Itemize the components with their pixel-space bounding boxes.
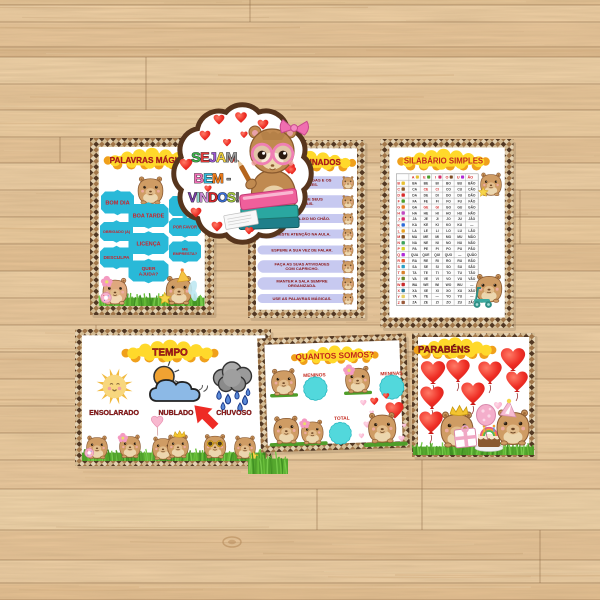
svg-text:MÃO: MÃO [468, 234, 476, 239]
svg-text:ZU: ZU [458, 301, 463, 305]
svg-text:CHUVOSO: CHUVOSO [216, 410, 252, 417]
svg-text:NÃO: NÃO [468, 240, 476, 245]
svg-text:QUÃO: QUÃO [467, 252, 477, 257]
svg-text:Q: Q [397, 253, 400, 257]
svg-text:H: H [397, 211, 400, 215]
svg-text:WA: WA [412, 283, 418, 287]
svg-text:K: K [397, 223, 400, 227]
svg-text:RA: RA [412, 259, 417, 263]
svg-text:QUI: QUI [434, 253, 440, 257]
svg-text:CO: CO [446, 187, 451, 191]
svg-text:XO: XO [446, 289, 451, 293]
svg-text:XI: XI [436, 289, 439, 293]
svg-text:BOM DIA: BOM DIA [105, 201, 129, 207]
svg-text:LÃO: LÃO [468, 228, 475, 233]
svg-text:G: G [397, 205, 400, 209]
svg-text:VU: VU [458, 277, 463, 281]
svg-text:SI: SI [436, 265, 439, 269]
svg-text:JÃO: JÃO [468, 216, 475, 221]
svg-text:ME: ME [423, 235, 429, 239]
svg-text:BA: BA [412, 182, 417, 186]
svg-text:RI: RI [436, 259, 439, 263]
svg-text:KI: KI [436, 223, 439, 227]
svg-text:FU: FU [458, 199, 463, 203]
svg-text:LICENÇA: LICENÇA [137, 241, 161, 247]
svg-text:WI: WI [435, 283, 439, 287]
svg-text:SU: SU [458, 265, 463, 269]
svg-text:MU: MU [457, 235, 463, 239]
svg-text:VÃO: VÃO [468, 276, 476, 281]
svg-text:JU: JU [458, 217, 463, 221]
svg-text:NE: NE [424, 241, 429, 245]
svg-text:PU: PU [458, 247, 463, 251]
svg-text:ZI: ZI [436, 301, 439, 305]
svg-text:QUER: QUER [142, 266, 156, 272]
svg-text:KE: KE [424, 223, 429, 227]
svg-text:USE AS PALAVRAS MÁGICAS.: USE AS PALAVRAS MÁGICAS. [272, 296, 331, 301]
svg-text:ESPERE A SUA VEZ DE FALAR.: ESPERE A SUA VEZ DE FALAR. [271, 247, 332, 252]
svg-text:MA: MA [412, 235, 418, 239]
svg-text:YO: YO [446, 295, 451, 299]
svg-text:O: O [446, 176, 449, 180]
svg-text:N: N [397, 241, 400, 245]
svg-text:LI: LI [436, 229, 439, 233]
svg-text:YA: YA [412, 295, 417, 299]
svg-text:NI: NI [436, 241, 439, 245]
svg-text:AJUDA?: AJUDA? [139, 272, 159, 278]
svg-text:QUO: QUO [445, 253, 453, 257]
svg-text:FO: FO [446, 199, 451, 203]
svg-text:WO: WO [446, 283, 452, 287]
svg-text:JO: JO [446, 217, 451, 221]
svg-text:PARABÉNS: PARABÉNS [418, 344, 470, 355]
svg-text:FA: FA [412, 199, 417, 203]
svg-text:KU: KU [457, 223, 462, 227]
svg-text:M: M [397, 235, 400, 239]
svg-text:DÃO: DÃO [468, 192, 476, 197]
svg-text:LU: LU [458, 229, 463, 233]
svg-text:HU: HU [457, 211, 462, 215]
svg-text:DI: DI [436, 193, 439, 197]
svg-text:XA: XA [412, 289, 417, 293]
svg-text:RÃO: RÃO [468, 258, 476, 263]
svg-text:RE: RE [424, 259, 429, 263]
svg-text:GI: GI [435, 205, 439, 209]
svg-text:ENSOLARADO: ENSOLARADO [89, 410, 139, 417]
svg-text:NO: NO [446, 241, 451, 245]
svg-text:HE: HE [424, 211, 429, 215]
svg-text:DO: DO [446, 193, 451, 197]
svg-text:PA: PA [412, 247, 417, 251]
svg-text:QUE: QUE [422, 253, 430, 257]
svg-text:BI: BI [436, 182, 439, 186]
svg-text:PI: PI [436, 247, 439, 251]
svg-text:SÃO: SÃO [468, 264, 476, 269]
svg-text:KO: KO [446, 223, 451, 227]
svg-text:TA: TA [413, 271, 418, 275]
svg-text:J: J [398, 217, 400, 221]
svg-text:CÃO: CÃO [468, 186, 476, 191]
svg-text:BOA TARDE: BOA TARDE [133, 213, 165, 219]
svg-text:GO: GO [446, 205, 452, 209]
svg-text:BÃO: BÃO [468, 181, 476, 186]
svg-text:DA: DA [412, 193, 417, 197]
svg-text:HA: HA [412, 211, 417, 215]
svg-text:LA: LA [412, 229, 417, 233]
svg-text:FI: FI [436, 199, 439, 203]
svg-text:CI: CI [436, 187, 439, 191]
svg-text:SEJAM: SEJAM [191, 150, 236, 166]
svg-text:BEM -: BEM - [194, 171, 232, 187]
svg-text:ZA: ZA [412, 301, 417, 305]
svg-text:C: C [397, 188, 400, 192]
svg-text:DU: DU [457, 193, 462, 197]
svg-text:R: R [397, 259, 400, 263]
svg-text:CA: CA [412, 187, 417, 191]
svg-text:CU: CU [457, 187, 462, 191]
svg-text:W: W [397, 283, 401, 287]
svg-text:YU: YU [458, 295, 463, 299]
svg-text:I: I [435, 176, 436, 180]
svg-text:NUBLADO: NUBLADO [159, 410, 195, 417]
svg-text:BO: BO [446, 182, 451, 186]
svg-text:RO: RO [446, 259, 451, 263]
svg-text:HO: HO [446, 211, 451, 215]
svg-text:TI: TI [436, 271, 439, 275]
svg-text:HI: HI [436, 211, 439, 215]
svg-text:LO: LO [446, 229, 451, 233]
svg-text:GA: GA [412, 205, 418, 209]
svg-text:VO: VO [446, 277, 451, 281]
svg-text:A: A [412, 176, 415, 180]
svg-text:E: E [423, 176, 426, 180]
svg-text:JA: JA [412, 217, 417, 221]
svg-text:NA: NA [412, 241, 417, 245]
svg-text:VA: VA [412, 277, 417, 281]
svg-text:U: U [457, 176, 460, 180]
svg-text:BU: BU [457, 182, 462, 186]
svg-text:D: D [397, 194, 400, 198]
svg-text:GE: GE [424, 205, 430, 209]
svg-text:EMPRESTA?: EMPRESTA? [173, 251, 198, 256]
svg-text:B: B [397, 182, 400, 186]
svg-text:SA: SA [412, 265, 417, 269]
svg-text:FÃO: FÃO [468, 198, 475, 203]
svg-text:POR FAVOR: POR FAVOR [173, 225, 197, 230]
svg-text:XÃO: XÃO [468, 288, 476, 293]
svg-text:PO: PO [446, 247, 451, 251]
svg-text:SO: SO [446, 265, 451, 269]
svg-text:DE: DE [424, 193, 429, 197]
svg-text:BE: BE [424, 182, 429, 186]
svg-text:TO: TO [446, 271, 451, 275]
svg-text:JI: JI [436, 217, 439, 221]
svg-text:TÃO: TÃO [468, 270, 475, 275]
svg-text:VI: VI [436, 277, 439, 281]
svg-text:XU: XU [458, 289, 463, 293]
svg-text:CE: CE [424, 187, 429, 191]
svg-text:WU: WU [457, 283, 463, 287]
svg-text:TEMPO: TEMPO [152, 348, 188, 359]
svg-text:GU: GU [457, 205, 463, 209]
svg-text:QUA: QUA [411, 253, 419, 257]
svg-text:ZO: ZO [446, 301, 451, 305]
svg-text:MO: MO [446, 235, 452, 239]
svg-text:RU: RU [457, 259, 462, 263]
svg-text:DESCULPA: DESCULPA [103, 255, 130, 261]
svg-text:TU: TU [458, 271, 463, 275]
svg-text:KA: KA [412, 223, 417, 227]
svg-text:MI: MI [435, 235, 439, 239]
svg-text:OBRIGADO (A): OBRIGADO (A) [103, 230, 131, 234]
svg-text:GÃO: GÃO [468, 204, 476, 209]
svg-text:SILABÁRIO SIMPLES: SILABÁRIO SIMPLES [404, 157, 483, 166]
svg-text:COM CAPRICHO.: COM CAPRICHO. [285, 266, 318, 271]
svg-text:TOTAL: TOTAL [334, 415, 350, 422]
svg-text:HÃO: HÃO [468, 210, 476, 215]
svg-text:WE: WE [423, 283, 429, 287]
svg-text:ÃO: ÃO [467, 175, 473, 180]
svg-text:NU: NU [457, 241, 462, 245]
svg-text:VINDOS!: VINDOS! [188, 190, 239, 205]
svg-text:PÃO: PÃO [468, 246, 476, 251]
svg-text:ORGANIZADA.: ORGANIZADA. [288, 283, 317, 288]
